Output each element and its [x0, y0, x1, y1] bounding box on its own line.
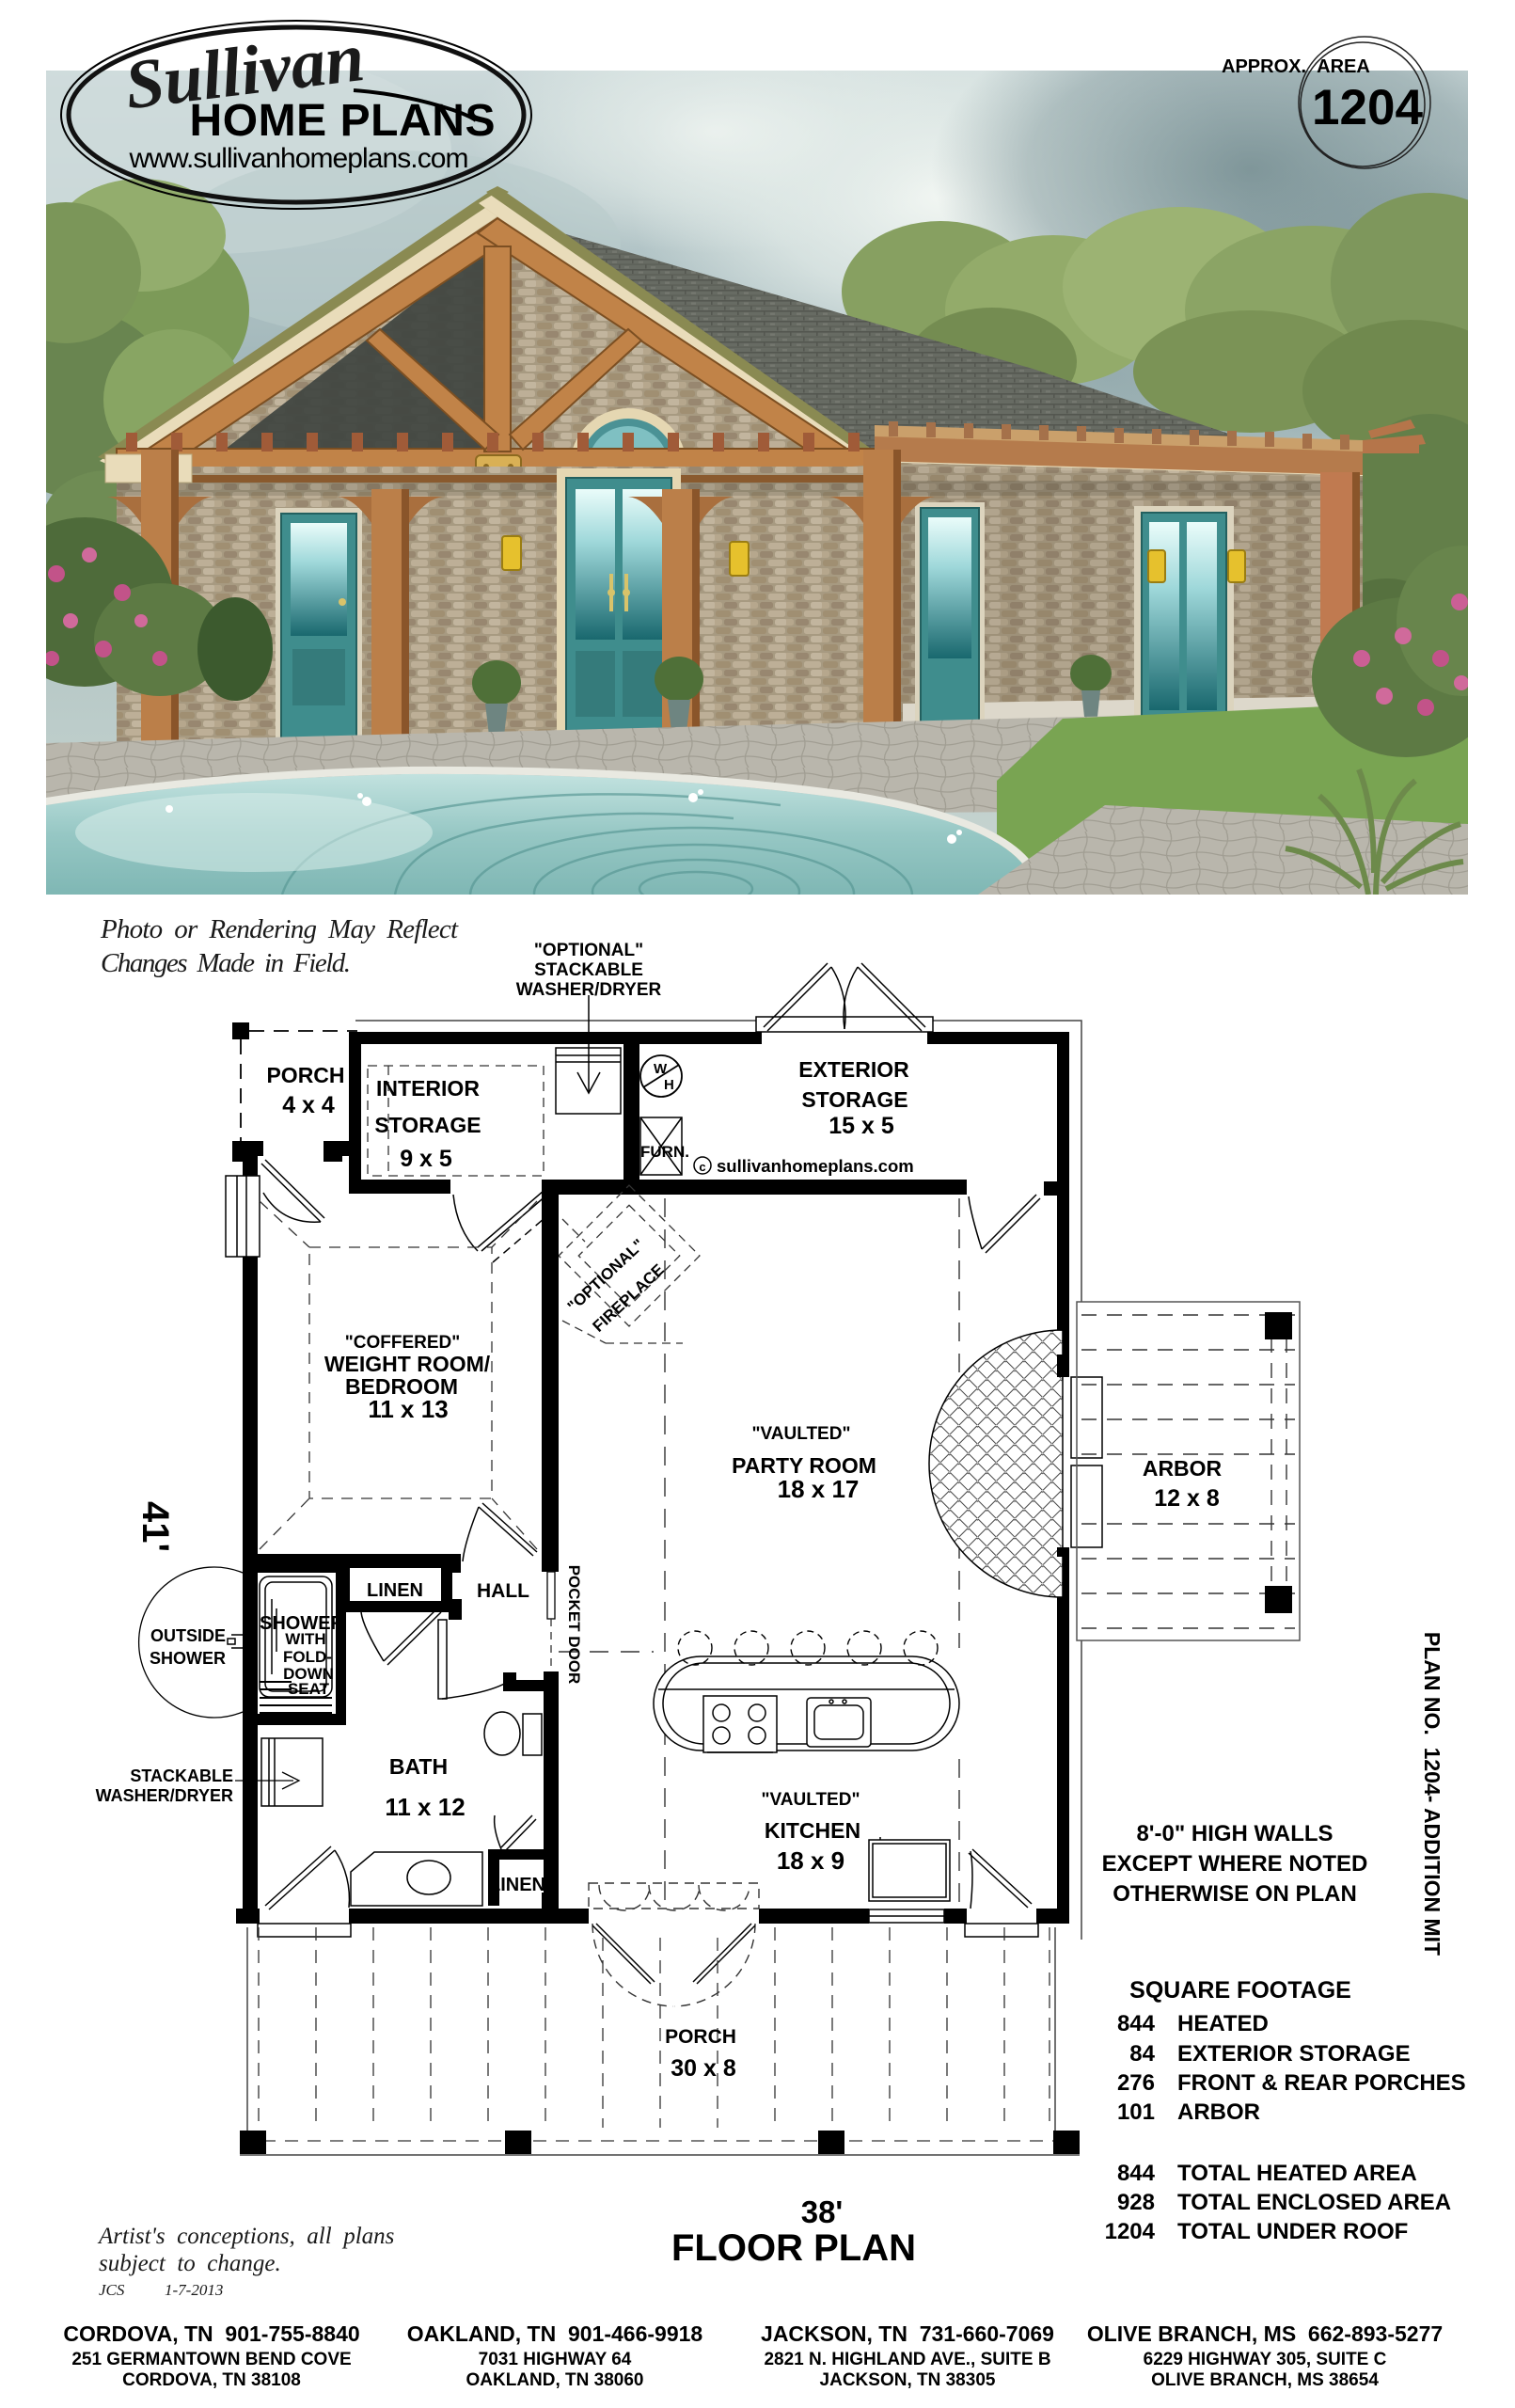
svg-text:HALL: HALL — [477, 1580, 529, 1602]
svg-text:"COFFERED": "COFFERED" — [345, 1333, 461, 1353]
svg-text:928: 928 — [1117, 2190, 1155, 2215]
svg-text:OLIVE BRANCH, MS 662-893-5277: OLIVE BRANCH, MS 662-893-5277 — [1087, 2321, 1443, 2346]
svg-text:30 x 8: 30 x 8 — [671, 2055, 736, 2082]
svg-text:PLAN NO. 1204- ADDITION MIT: PLAN NO. 1204- ADDITION MIT — [1420, 1632, 1444, 1956]
svg-text:ARBOR: ARBOR — [1177, 2099, 1260, 2125]
svg-text:SQUARE FOOTAGE: SQUARE FOOTAGE — [1129, 1977, 1351, 2004]
svg-text:1204: 1204 — [1105, 2219, 1156, 2244]
svg-text:HOME PLANS: HOME PLANS — [190, 96, 496, 146]
svg-text:APPROX. AREA: APPROX. AREA — [1222, 56, 1370, 77]
svg-text:844: 844 — [1117, 2161, 1156, 2186]
svg-text:"OPTIONAL": "OPTIONAL" — [534, 941, 643, 960]
svg-text:sullivanhomeplans.com: sullivanhomeplans.com — [717, 1156, 914, 1176]
svg-text:9 x 5: 9 x 5 — [400, 1146, 452, 1172]
svg-text:OAKLAND, TN 38060: OAKLAND, TN 38060 — [466, 2370, 644, 2390]
svg-text:STORAGE: STORAGE — [374, 1113, 481, 1137]
svg-text:subject to change.: subject to change. — [99, 2251, 281, 2276]
svg-text:KITCHEN: KITCHEN — [765, 1818, 860, 1843]
svg-text:LINEN: LINEN — [367, 1580, 423, 1601]
svg-text:WEIGHT ROOM/: WEIGHT ROOM/ — [324, 1352, 491, 1376]
svg-text:FOLD-: FOLD- — [283, 1648, 332, 1666]
svg-text:TOTAL HEATED AREA: TOTAL HEATED AREA — [1177, 2161, 1417, 2186]
svg-text:OAKLAND, TN 901-466-9918: OAKLAND, TN 901-466-9918 — [407, 2321, 703, 2346]
svg-text:TOTAL UNDER ROOF: TOTAL UNDER ROOF — [1177, 2219, 1408, 2244]
svg-text:OUTSIDE: OUTSIDE — [150, 1626, 226, 1645]
svg-text:18 x 17: 18 x 17 — [778, 1475, 860, 1503]
svg-text:INTERIOR: INTERIOR — [376, 1076, 480, 1101]
svg-text:"VAULTED": "VAULTED" — [752, 1424, 851, 1444]
svg-text:12 x 8: 12 x 8 — [1154, 1485, 1220, 1512]
svg-text:2821 N. HIGHLAND AVE., SUITE B: 2821 N. HIGHLAND AVE., SUITE B — [764, 2350, 1050, 2369]
svg-text:www.sullivanhomeplans.com: www.sullivanhomeplans.com — [129, 143, 469, 174]
svg-text:CORDOVA, TN 901-755-8840: CORDOVA, TN 901-755-8840 — [63, 2321, 359, 2346]
svg-text:WASHER/DRYER: WASHER/DRYER — [96, 1786, 233, 1805]
svg-text:EXCEPT WHERE NOTED: EXCEPT WHERE NOTED — [1102, 1851, 1368, 1877]
svg-text:15 x 5: 15 x 5 — [829, 1113, 894, 1139]
svg-text:JACKSON, TN 38305: JACKSON, TN 38305 — [820, 2370, 996, 2390]
svg-text:c: c — [699, 1160, 705, 1174]
svg-text:EXTERIOR STORAGE: EXTERIOR STORAGE — [1177, 2041, 1411, 2067]
svg-text:251 GERMANTOWN BEND COVE: 251 GERMANTOWN BEND COVE — [71, 2350, 351, 2369]
svg-text:JACKSON, TN 731-660-7069: JACKSON, TN 731-660-7069 — [761, 2321, 1054, 2346]
svg-text:HEATED: HEATED — [1177, 2011, 1269, 2036]
svg-text:SEAT: SEAT — [288, 1680, 330, 1698]
svg-text:1204: 1204 — [1312, 80, 1423, 135]
svg-text:Changes Made in Field.: Changes Made in Field. — [101, 948, 351, 978]
svg-text:FLOOR PLAN: FLOOR PLAN — [671, 2227, 916, 2269]
svg-text:JCS: JCS — [99, 2281, 125, 2299]
svg-text:STACKABLE: STACKABLE — [130, 1766, 233, 1785]
svg-text:41': 41' — [134, 1501, 176, 1552]
svg-text:H: H — [664, 1077, 674, 1093]
svg-text:Photo or Rendering May Ref: Photo or Rendering May Reflect — [100, 914, 459, 944]
svg-text:18 x 9: 18 x 9 — [777, 1846, 844, 1875]
svg-text:4 x 4: 4 x 4 — [282, 1092, 335, 1118]
svg-text:"VAULTED": "VAULTED" — [762, 1790, 860, 1810]
svg-text:FRONT & REAR PORCHES: FRONT & REAR PORCHES — [1177, 2070, 1466, 2096]
svg-text:11 x 12: 11 x 12 — [385, 1793, 465, 1821]
svg-text:8'-0" HIGH WALLS: 8'-0" HIGH WALLS — [1136, 1821, 1333, 1846]
svg-text:WITH: WITH — [285, 1630, 325, 1648]
svg-text:BATH: BATH — [389, 1754, 448, 1779]
svg-text:STACKABLE: STACKABLE — [534, 960, 643, 980]
svg-text:TOTAL ENCLOSED AREA: TOTAL ENCLOSED AREA — [1177, 2190, 1451, 2215]
svg-text:Artist's conceptions, all p: Artist's conceptions, all plans — [97, 2224, 394, 2249]
svg-text:STORAGE: STORAGE — [801, 1087, 907, 1112]
svg-text:PORCH: PORCH — [665, 2026, 736, 2048]
svg-text:6229 HIGHWAY 305, SUITE C: 6229 HIGHWAY 305, SUITE C — [1144, 2350, 1387, 2369]
svg-text:LINEN: LINEN — [489, 1875, 545, 1895]
svg-text:POCKET DOOR: POCKET DOOR — [565, 1565, 583, 1685]
svg-text:W: W — [654, 1061, 668, 1077]
svg-text:SHOWER: SHOWER — [150, 1649, 226, 1668]
svg-text:84: 84 — [1129, 2041, 1155, 2067]
svg-text:EXTERIOR: EXTERIOR — [798, 1057, 909, 1082]
svg-text:WASHER/DRYER: WASHER/DRYER — [516, 980, 662, 1000]
svg-text:844: 844 — [1117, 2011, 1156, 2036]
svg-text:276: 276 — [1117, 2070, 1155, 2096]
svg-text:FURN.: FURN. — [640, 1143, 689, 1161]
svg-text:38': 38' — [801, 2194, 844, 2229]
svg-text:CORDOVA, TN 38108: CORDOVA, TN 38108 — [122, 2370, 301, 2390]
svg-text:OTHERWISE ON PLAN: OTHERWISE ON PLAN — [1113, 1881, 1357, 1907]
svg-text:OLIVE BRANCH, MS 38654: OLIVE BRANCH, MS 38654 — [1151, 2370, 1379, 2390]
svg-text:ARBOR: ARBOR — [1143, 1456, 1223, 1481]
svg-text:11 x 13: 11 x 13 — [368, 1395, 448, 1423]
svg-text:7031 HIGHWAY 64: 7031 HIGHWAY 64 — [479, 2350, 632, 2369]
svg-text:PORCH: PORCH — [266, 1063, 344, 1087]
svg-text:101: 101 — [1117, 2099, 1155, 2125]
svg-text:1-7-2013: 1-7-2013 — [165, 2281, 223, 2299]
